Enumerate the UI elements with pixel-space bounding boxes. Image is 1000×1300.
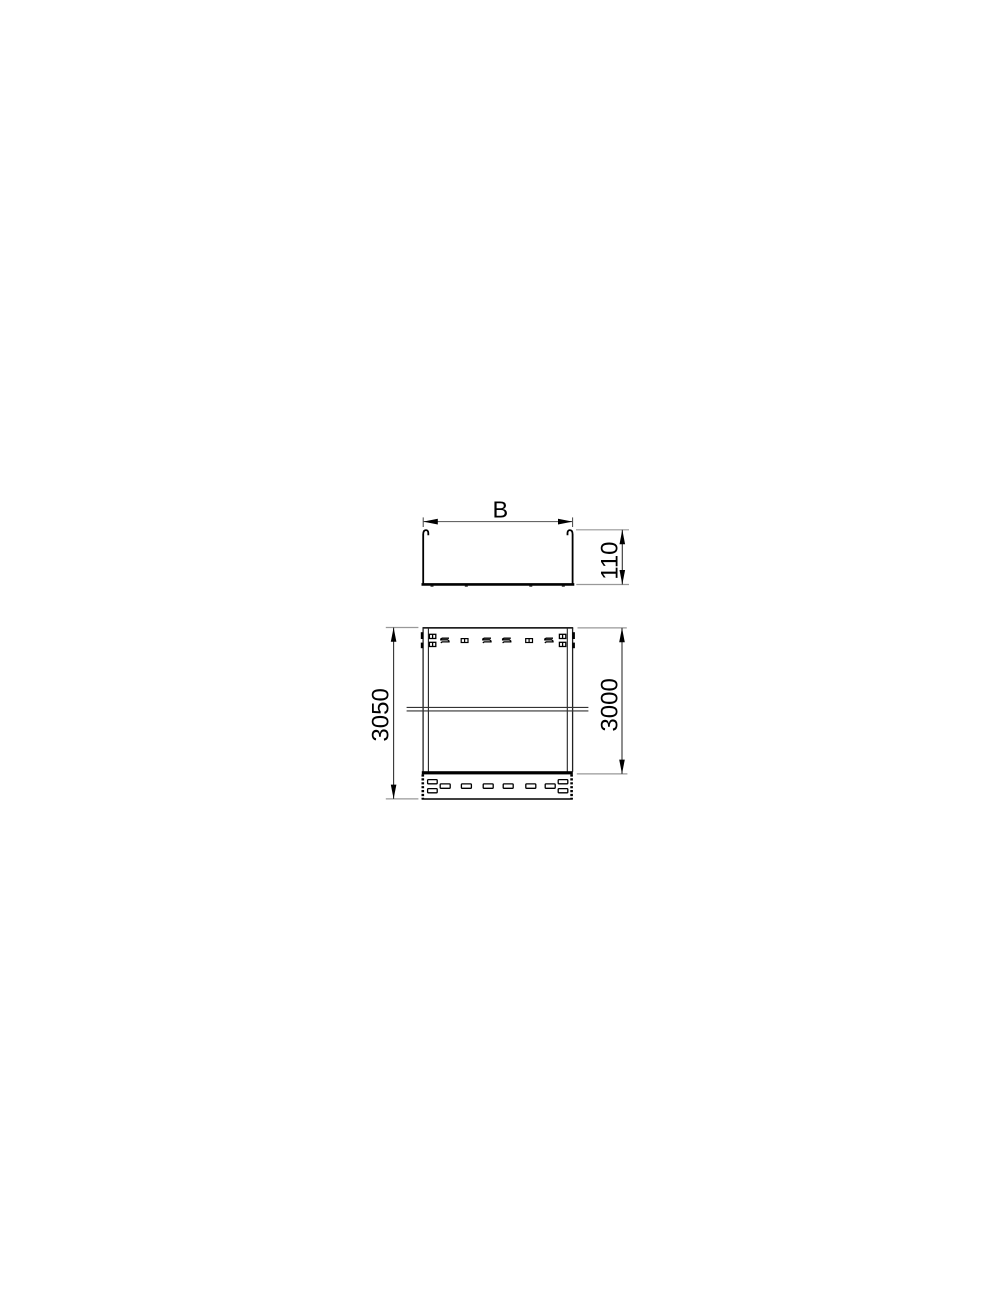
svg-text:110: 110: [597, 541, 624, 579]
svg-text:3000: 3000: [597, 678, 624, 731]
svg-text:3050: 3050: [368, 688, 395, 741]
svg-text:B: B: [493, 496, 509, 522]
